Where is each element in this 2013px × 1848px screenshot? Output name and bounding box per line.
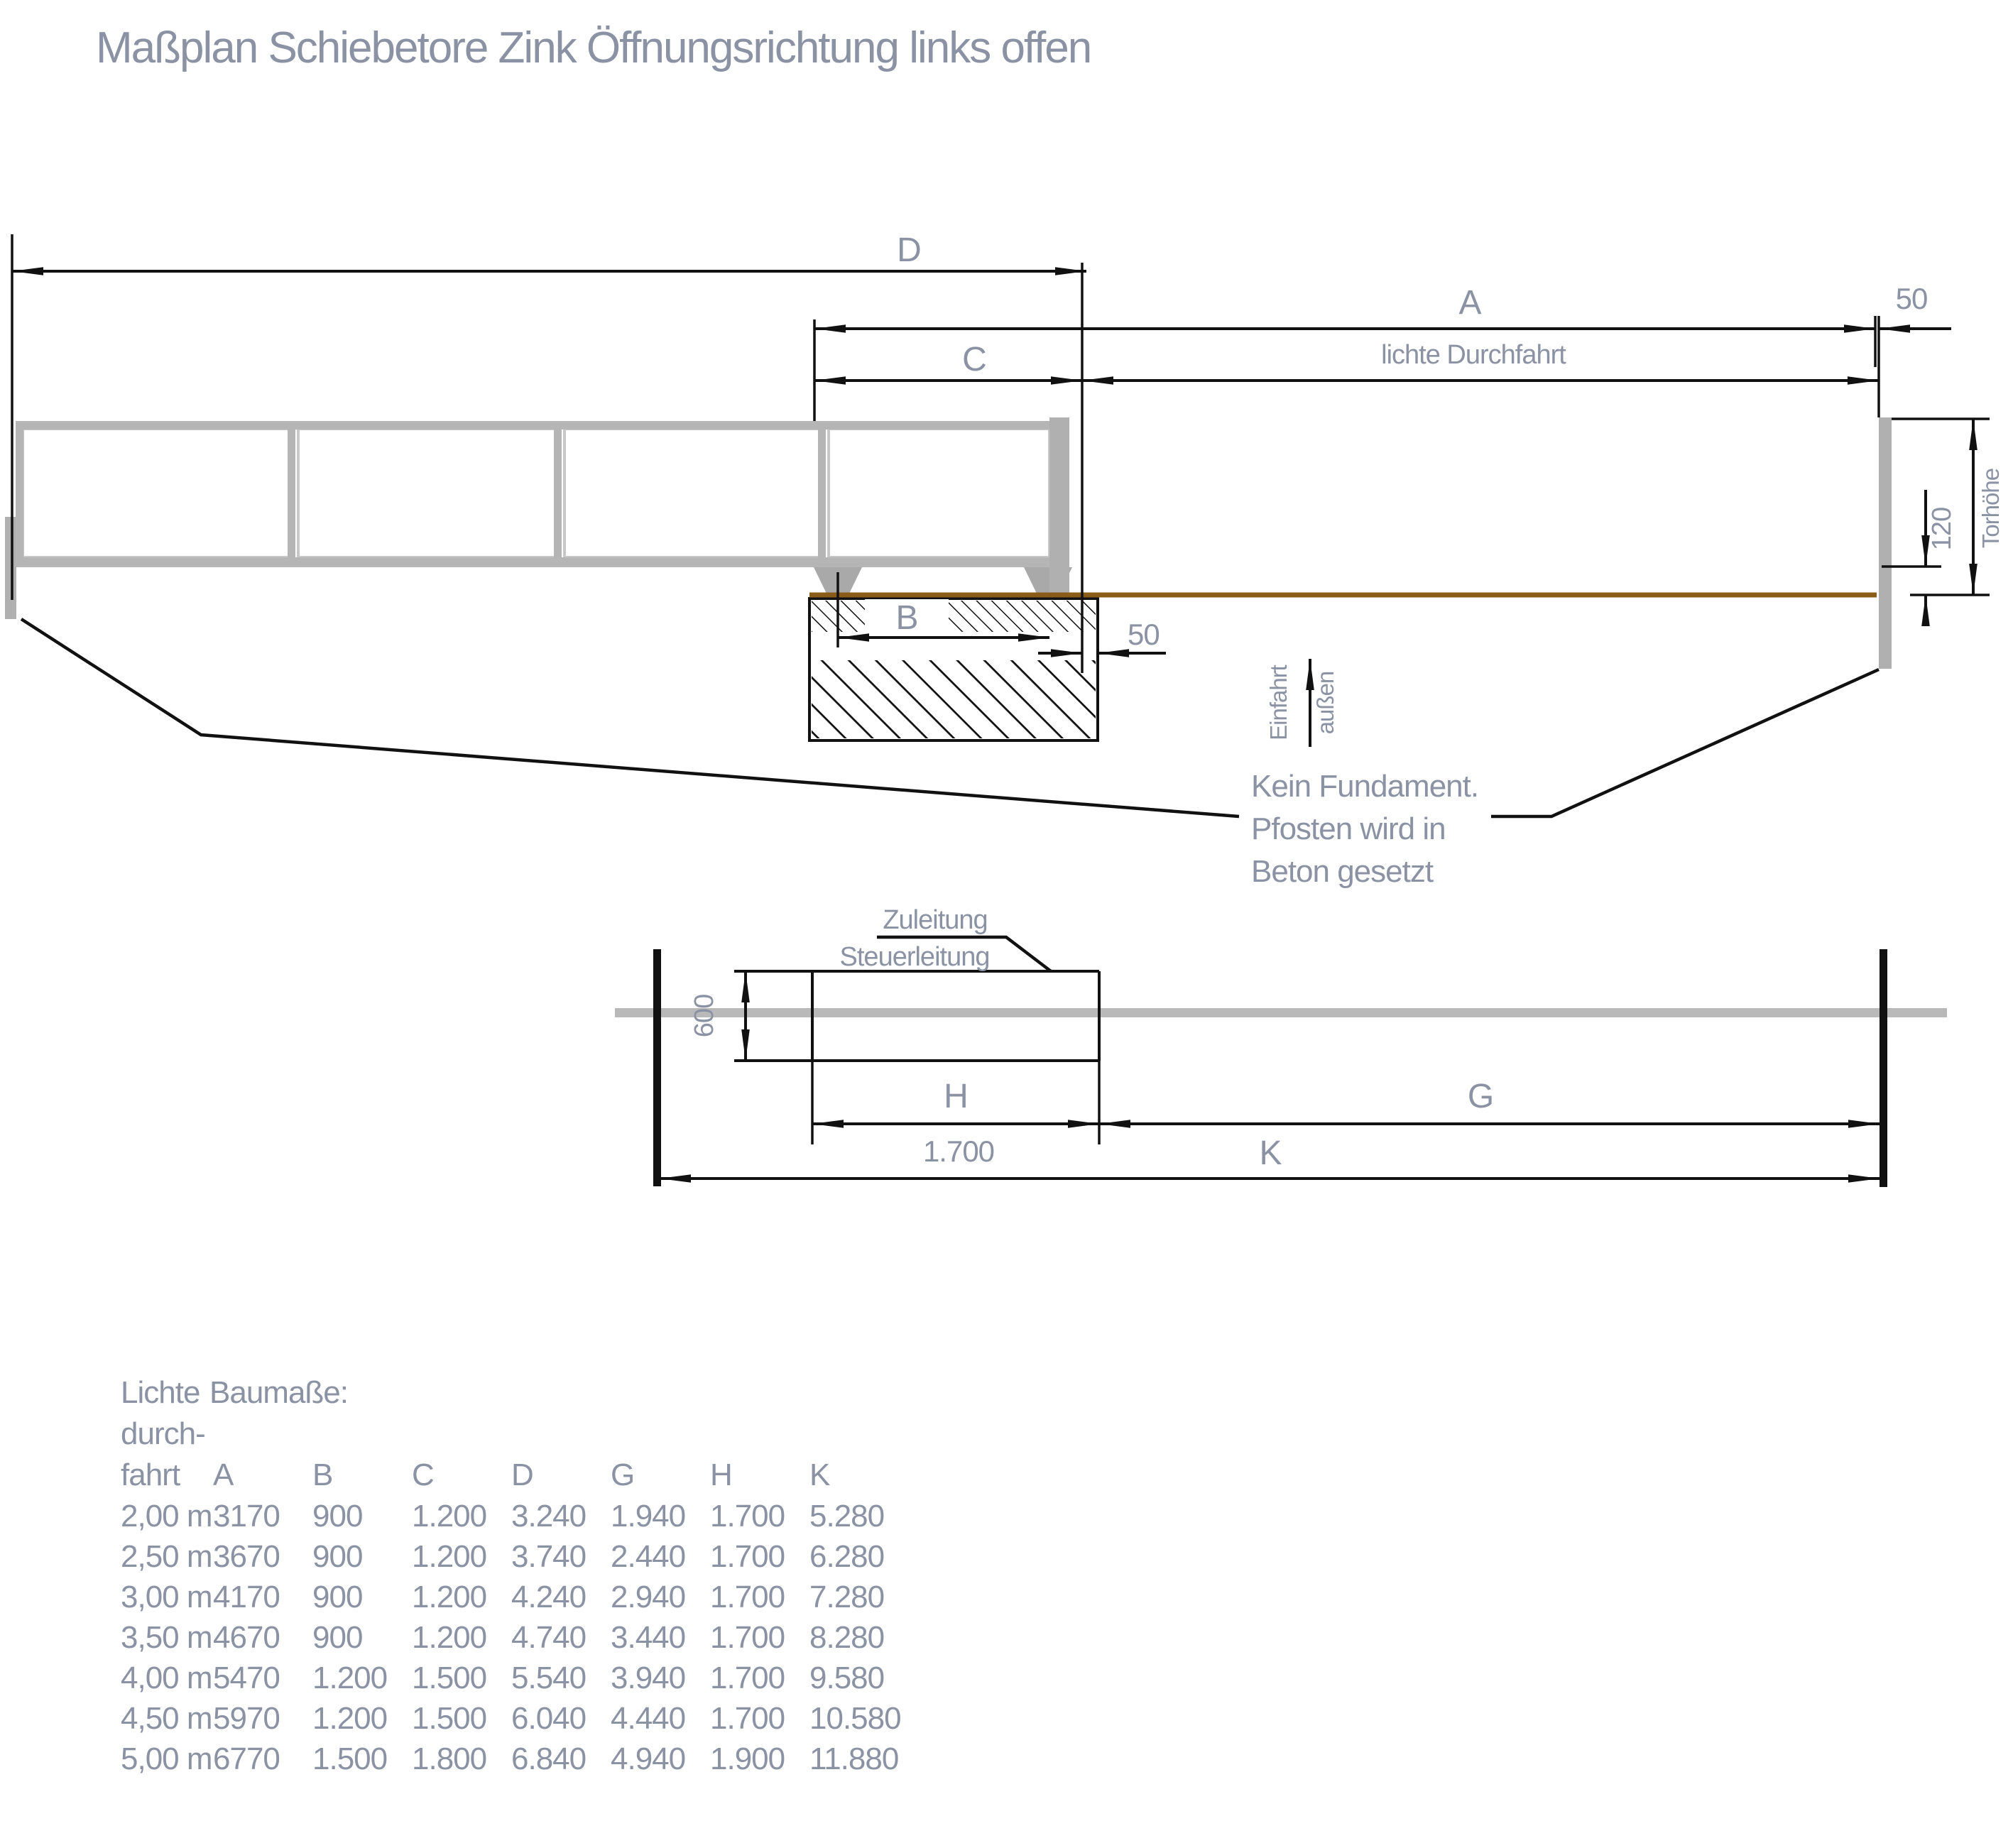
cell: 6.040 [511, 1701, 586, 1736]
label-B: B [895, 599, 917, 637]
cell: 1.200 [312, 1701, 387, 1736]
cell: 11.880 [809, 1742, 898, 1776]
cell: 3.740 [511, 1539, 586, 1574]
cell: 1.700 [710, 1499, 785, 1533]
cell: 1.940 [611, 1499, 685, 1533]
table-row: 4,50 m 5970 1.200 1.500 6.040 4.440 1.70… [121, 1701, 901, 1736]
label-outside: außen [1312, 672, 1338, 735]
gate-panel [298, 429, 557, 557]
measurement-plan-page: Maßplan Schiebetore Zink Öffnungsrichtun… [0, 0, 2013, 1844]
note-line-1: Kein Fundament. [1251, 769, 1478, 804]
label-C: C [962, 341, 986, 378]
gate-divider [818, 425, 826, 557]
cell: 5470 [213, 1661, 280, 1695]
sliding-gate-dimension-drawing: Maßplan Schiebetore Zink Öffnungsrichtun… [0, 0, 2013, 1844]
cell: 6770 [213, 1742, 280, 1776]
table-col1-header: fahrt [121, 1458, 180, 1492]
cell: 3170 [213, 1499, 280, 1533]
table-col-header-K: K [809, 1458, 830, 1492]
table-group-header: Baumaße: [209, 1375, 348, 1410]
cell: 1.700 [710, 1701, 785, 1736]
gate-top-rail [16, 421, 1069, 430]
cell: 4170 [213, 1580, 280, 1614]
right-post [1879, 417, 1892, 669]
cell: 1.700 [710, 1661, 785, 1695]
label-1700: 1.700 [923, 1135, 994, 1168]
foundation-hatch-coarse [812, 660, 1096, 738]
dimension-table: Lichte durch- fahrt Baumaße: A B C D G H… [121, 1375, 901, 1776]
cell: 1.800 [412, 1742, 486, 1776]
table-col-header-C: C [412, 1458, 434, 1492]
cell: 2.440 [611, 1539, 685, 1574]
cell: 6.840 [511, 1742, 586, 1776]
table-col1-header: Lichte [121, 1375, 200, 1410]
cell: 2.940 [611, 1580, 685, 1614]
label-120: 120 [1927, 508, 1957, 550]
label-600: 600 [689, 995, 719, 1037]
cell: 5970 [213, 1701, 280, 1736]
cell: 900 [312, 1539, 362, 1574]
cell: 1.500 [312, 1742, 387, 1776]
label-drive-in: Einfahrt [1265, 665, 1292, 740]
cell: 1.200 [412, 1580, 486, 1614]
cell: 1.200 [312, 1661, 387, 1695]
cell: 3,00 m [121, 1580, 212, 1614]
plan-rail [615, 1008, 1947, 1017]
table-row: 2,00 m 3170 900 1.200 3.240 1.940 1.700 … [121, 1499, 884, 1533]
cell: 6.280 [809, 1539, 884, 1574]
cell: 5,00 m [121, 1742, 212, 1776]
table-row: 2,50 m 3670 900 1.200 3.740 2.440 1.700 … [121, 1539, 884, 1574]
table-col1-header: durch- [121, 1416, 205, 1451]
cell: 3.240 [511, 1499, 586, 1533]
label-clear-passage: lichte Durchfahrt [1381, 340, 1566, 370]
cell: 1.700 [710, 1620, 785, 1655]
table-col-header-H: H [710, 1458, 732, 1492]
gate-divider [554, 425, 562, 557]
cell: 4.740 [511, 1620, 586, 1655]
table-col-header-A: A [213, 1458, 234, 1492]
table-col-header-B: B [312, 1458, 332, 1492]
cell: 1.700 [710, 1539, 785, 1574]
plan-view: Zuleitung Steuerleitung 600 H G 1.700 K [615, 905, 1947, 1187]
cell: 2,00 m [121, 1499, 212, 1533]
cell: 3.440 [611, 1620, 685, 1655]
no-foundation-note: Kein Fundament. Pfosten wird in Beton ge… [1251, 769, 1478, 889]
label-H: H [944, 1078, 968, 1115]
cell: 1.500 [412, 1661, 486, 1695]
gate-bottom-rail [16, 557, 1069, 567]
label-gate-height: Torhöhe [1977, 469, 2004, 548]
table-col-header-D: D [511, 1458, 533, 1492]
gate-panel [829, 429, 1049, 557]
cell: 4,50 m [121, 1701, 212, 1736]
gate-left-stile [16, 421, 23, 567]
plan-left-post [653, 949, 661, 1186]
cell: 10.580 [809, 1701, 901, 1736]
foundation-section [809, 598, 1098, 740]
gate-divider [288, 425, 295, 557]
cell: 900 [312, 1580, 362, 1614]
cell: 3.940 [611, 1661, 685, 1695]
cell: 2,50 m [121, 1539, 212, 1574]
cell: 8.280 [809, 1620, 884, 1655]
gate-panel [564, 429, 822, 557]
cell: 4670 [213, 1620, 280, 1655]
table-row: 4,00 m 5470 1.200 1.500 5.540 3.940 1.70… [121, 1661, 884, 1695]
table-row: 3,50 m 4670 900 1.200 4.740 3.440 1.700 … [121, 1620, 884, 1655]
plan-right-post [1880, 949, 1887, 1187]
cell: 4.240 [511, 1580, 586, 1614]
cell: 4,00 m [121, 1661, 212, 1695]
gate-panel [23, 429, 291, 557]
cell: 900 [312, 1499, 362, 1533]
label-D: D [897, 231, 921, 269]
note-line-3: Beton gesetzt [1251, 854, 1434, 889]
label-supply-line: Zuleitung [883, 905, 987, 935]
elevation-view: D A C 50 lichte Durchfahrt B 50 120 Torh… [5, 231, 2004, 889]
table-row: 5,00 m 6770 1.500 1.800 6.840 4.940 1.90… [121, 1742, 898, 1776]
note-line-2: Pfosten wird in [1251, 811, 1446, 846]
page-title: Maßplan Schiebetore Zink Öffnungsrichtun… [96, 23, 1091, 72]
cell: 4.440 [611, 1701, 685, 1736]
left-post [5, 517, 16, 619]
cell: 5.540 [511, 1661, 586, 1695]
cell: 5.280 [809, 1499, 884, 1533]
cell: 1.200 [412, 1539, 486, 1574]
cell: 1.700 [710, 1580, 785, 1614]
cell: 1.200 [412, 1499, 486, 1533]
cell: 3670 [213, 1539, 280, 1574]
cell: 1.500 [412, 1701, 486, 1736]
label-50-foundation: 50 [1128, 618, 1160, 651]
table-col-header-G: G [611, 1458, 634, 1492]
cell: 9.580 [809, 1661, 884, 1695]
foundation-hatch-fine [812, 601, 1096, 632]
cell: 3,50 m [121, 1620, 212, 1655]
label-G: G [1468, 1078, 1493, 1115]
cell: 1.900 [710, 1742, 785, 1776]
label-A: A [1458, 284, 1481, 322]
table-row: 3,00 m 4170 900 1.200 4.240 2.940 1.700 … [121, 1580, 884, 1614]
cell: 1.200 [412, 1620, 486, 1655]
cell: 4.940 [611, 1742, 685, 1776]
label-K: K [1259, 1135, 1282, 1172]
cell: 7.280 [809, 1580, 884, 1614]
label-50-post: 50 [1896, 282, 1928, 315]
cell: 900 [312, 1620, 362, 1655]
label-control-line: Steuerleitung [840, 942, 990, 972]
